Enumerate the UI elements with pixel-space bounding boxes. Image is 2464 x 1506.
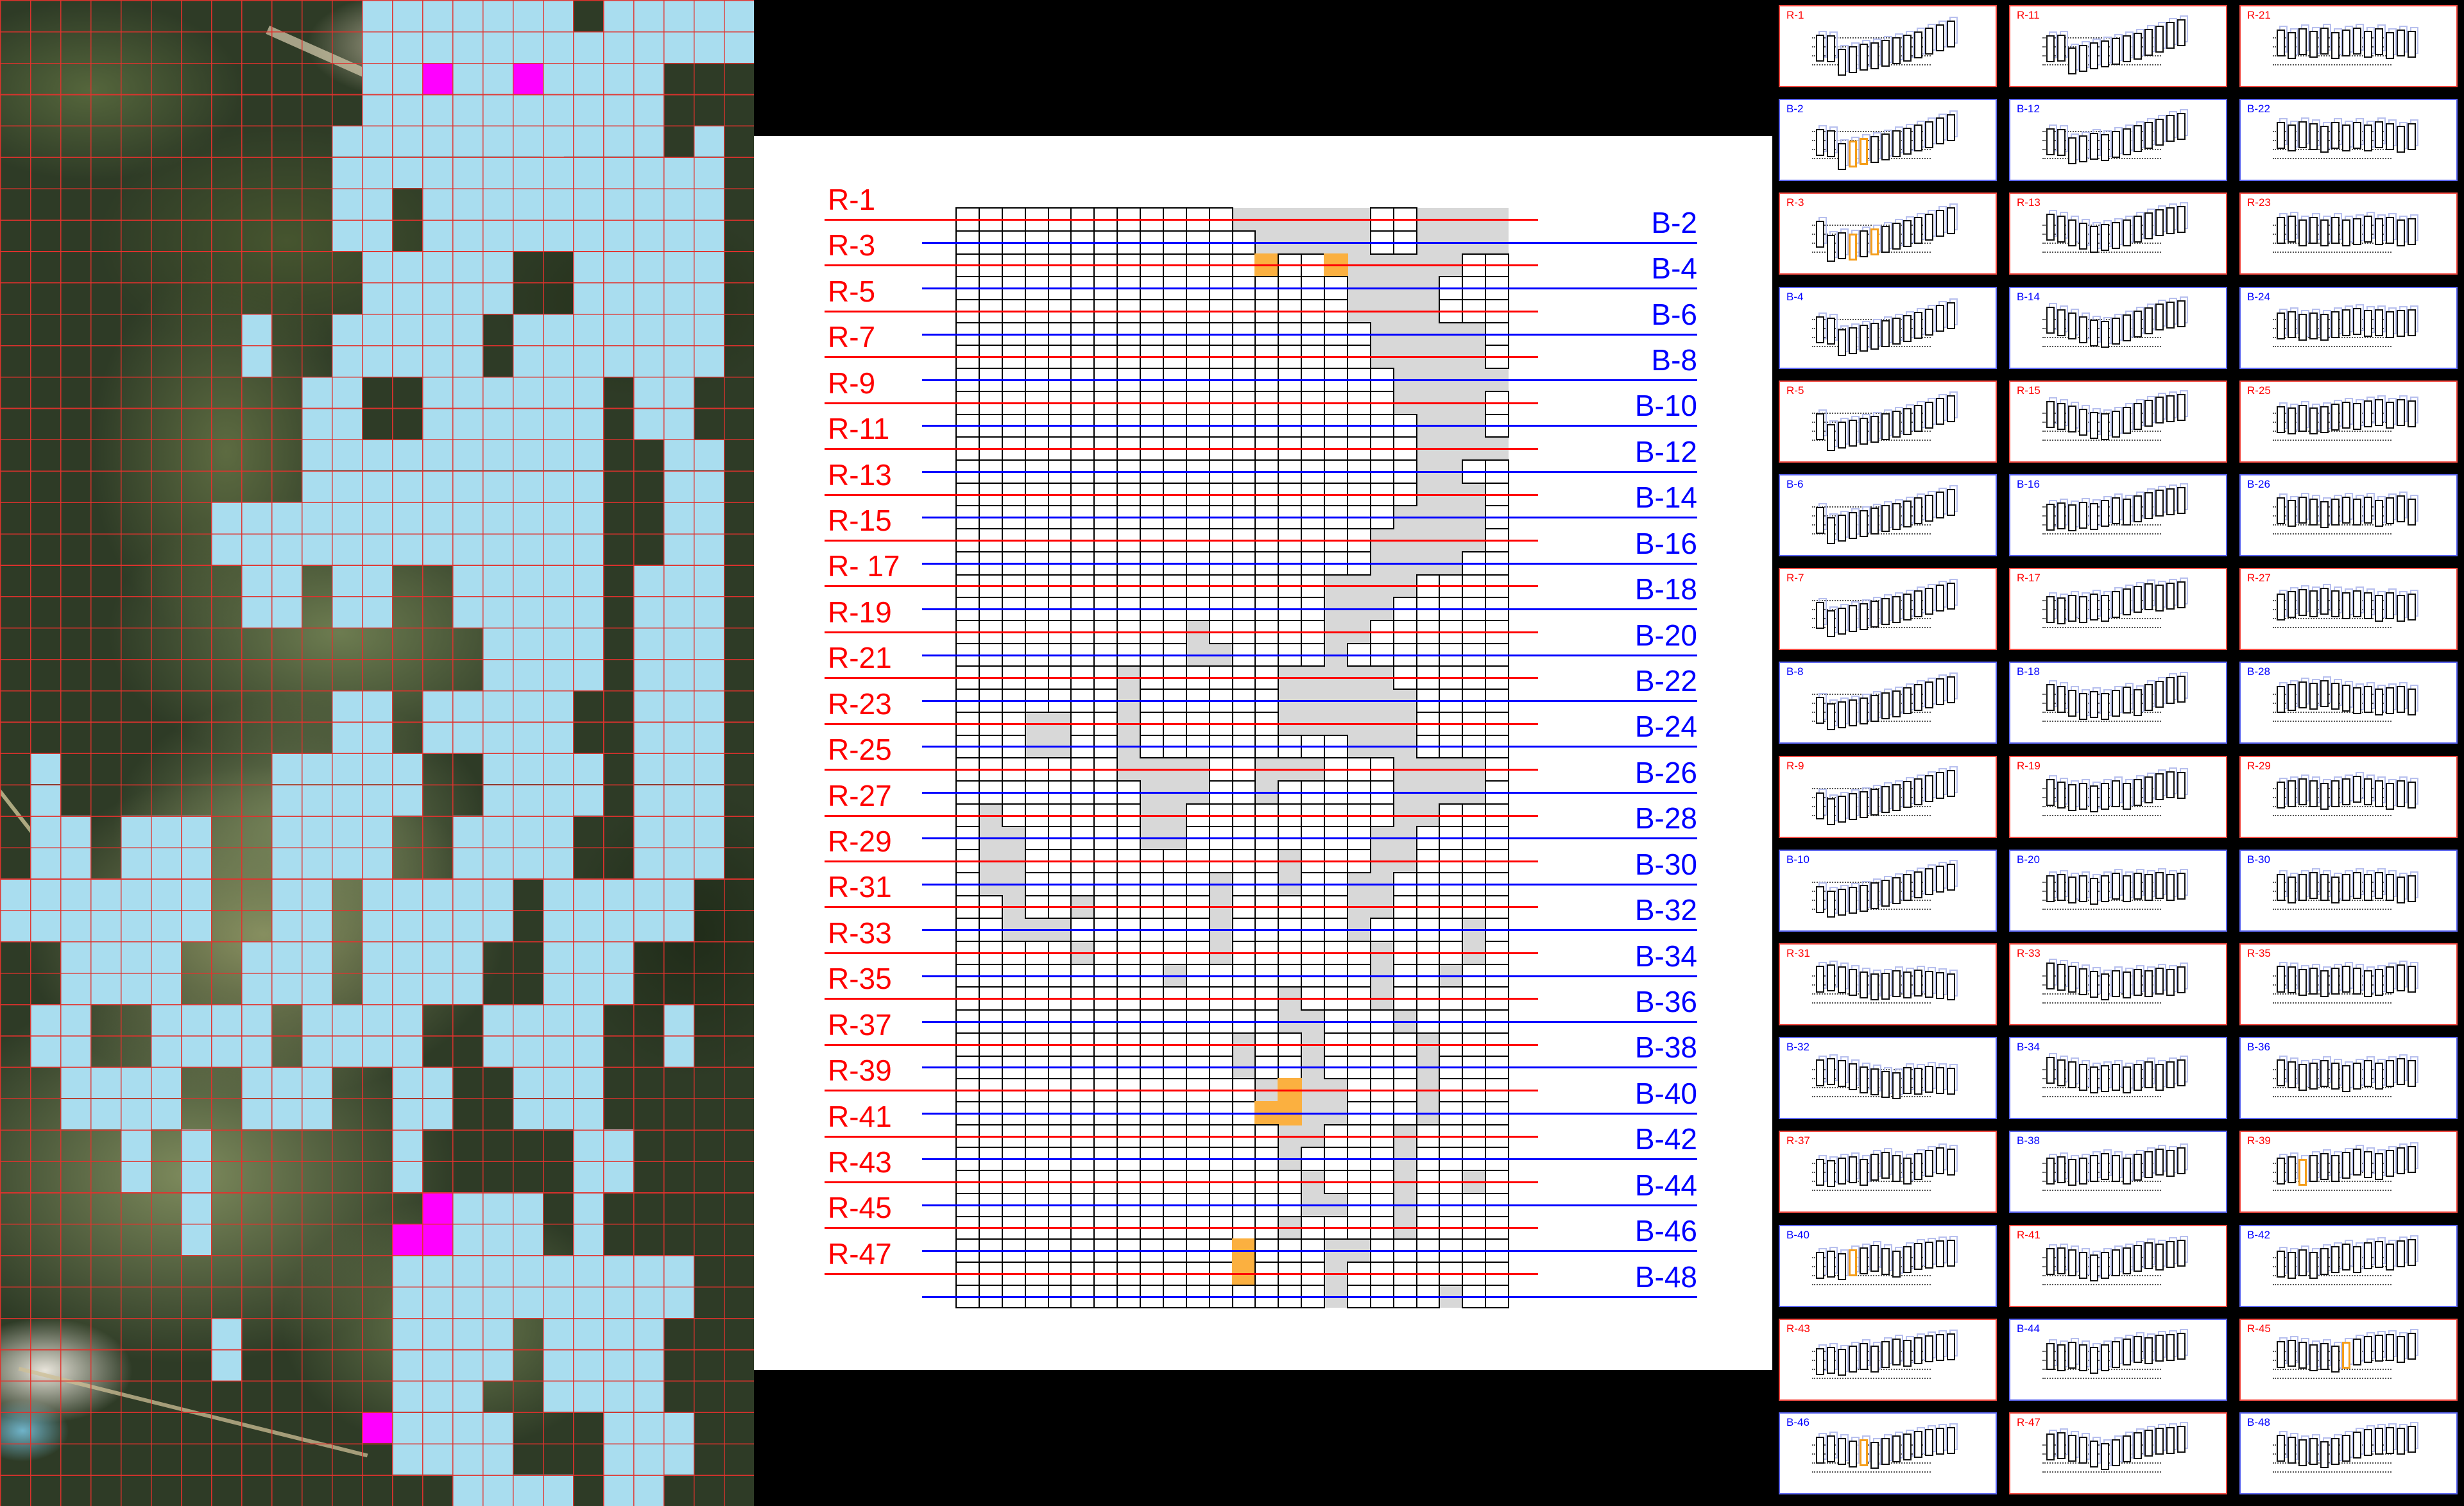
profile-bar	[1849, 512, 1857, 539]
transect-label-right: B-12	[1505, 437, 1697, 466]
profile-bar	[2331, 590, 2340, 617]
profile-dotted-line	[2273, 346, 2391, 347]
transect-line-red	[825, 906, 1538, 908]
profile-bar	[2046, 963, 2055, 989]
profile-card[interactable]: R-23	[2239, 193, 2458, 275]
profile-card[interactable]: R-17	[2009, 568, 2227, 650]
profile-bar	[2166, 395, 2175, 422]
profile-card[interactable]: B-44	[2009, 1319, 2227, 1401]
profile-card[interactable]: B-36	[2239, 1037, 2458, 1119]
profile-bar	[2177, 1426, 2186, 1453]
profile-bar	[1827, 517, 1835, 544]
profile-card[interactable]: B-40	[1779, 1225, 1997, 1307]
profile-dotted-line	[2273, 815, 2391, 816]
transect-line-blue	[922, 1113, 1697, 1115]
profile-bar	[1816, 1059, 1824, 1086]
profile-card[interactable]: B-8	[1779, 662, 1997, 744]
profile-bar	[2101, 1153, 2109, 1180]
profile-bar	[2090, 226, 2098, 253]
profile-card[interactable]: B-38	[2009, 1131, 2227, 1213]
profile-card[interactable]: B-42	[2239, 1225, 2458, 1307]
profile-card[interactable]: R-7	[1779, 568, 1997, 650]
profile-bar	[2123, 407, 2131, 434]
profile-bar	[2112, 131, 2120, 158]
profile-bar	[1838, 49, 1846, 76]
profile-bar	[2090, 503, 2098, 530]
profile-bar	[2408, 1146, 2416, 1173]
profile-bar	[2320, 1343, 2329, 1370]
profile-card[interactable]: B-12	[2009, 99, 2227, 181]
profile-bar	[2342, 402, 2350, 429]
profile-bar	[2375, 689, 2383, 715]
profile-bar	[2277, 30, 2285, 56]
profile-bar	[2320, 28, 2329, 55]
profile-bar	[2364, 1336, 2372, 1363]
profile-card[interactable]: B-16	[2009, 474, 2227, 556]
profile-bar	[1860, 791, 1868, 818]
profile-card[interactable]: R-1	[1779, 5, 1997, 87]
profile-bar	[1838, 1349, 1846, 1376]
profile-bar	[1892, 411, 1901, 438]
profile-bar	[1849, 327, 1857, 354]
transect-label-right: B-6	[1505, 300, 1697, 329]
profile-bar	[1860, 44, 1868, 71]
transect-label-left: R-1	[828, 185, 995, 214]
profile-bar	[1947, 207, 1955, 234]
profile-card-label: R-11	[2017, 9, 2040, 22]
profile-card[interactable]: R-13	[2009, 193, 2227, 275]
profile-card[interactable]: B-22	[2239, 99, 2458, 181]
profile-bar	[2397, 877, 2405, 903]
profile-bar	[2309, 590, 2318, 617]
profile-bar	[2166, 22, 2175, 49]
profile-bar	[1903, 1158, 1912, 1185]
profile-bar	[2057, 686, 2066, 713]
profile-bar	[2046, 1343, 2055, 1370]
profile-card-label: R-17	[2017, 572, 2041, 585]
profile-bar	[2046, 596, 2055, 623]
profile-bar	[2123, 314, 2131, 341]
profile-bar	[1925, 971, 1933, 998]
profile-bar	[2112, 970, 2120, 997]
profile-bar	[1870, 695, 1879, 722]
profile-bar	[1849, 1346, 1857, 1373]
profile-bar	[2397, 780, 2405, 807]
profile-bar	[2386, 497, 2394, 524]
profile-dotted-line	[2042, 627, 2161, 628]
profile-bar	[2101, 500, 2109, 527]
profile-bar	[2155, 872, 2164, 899]
profile-bar	[2079, 596, 2087, 623]
profile-card[interactable]: R-35	[2239, 943, 2458, 1025]
profile-card[interactable]: R-43	[1779, 1319, 1997, 1401]
profile-bar	[1925, 495, 1933, 522]
profile-bar	[2101, 595, 2109, 622]
transect-line-red	[825, 494, 1538, 496]
profile-bar	[1827, 1435, 1835, 1462]
profile-bar	[2298, 969, 2307, 996]
transect-line-red	[825, 585, 1538, 587]
transect-label-left: R-7	[828, 322, 995, 352]
profile-bar	[1936, 210, 1944, 237]
profile-dotted-line	[2273, 1471, 2391, 1473]
profile-bar	[1816, 602, 1824, 629]
profile-bar-orange	[1849, 234, 1857, 261]
profile-card[interactable]: R-45	[2239, 1319, 2458, 1401]
profile-bar	[2134, 33, 2142, 60]
profile-bar	[2166, 1150, 2175, 1177]
transect-line-red	[825, 1181, 1538, 1183]
profile-bar	[2309, 968, 2318, 995]
profile-bar	[2277, 1251, 2285, 1278]
transect-label-right: B-16	[1505, 529, 1697, 558]
profile-bar	[1947, 973, 1955, 1000]
transect-label-left: R-21	[828, 643, 995, 672]
profile-bar	[1881, 320, 1890, 347]
profile-bar	[2177, 206, 2186, 233]
transect-line-blue	[922, 242, 1697, 244]
profile-bar	[1947, 1149, 1955, 1176]
profile-bar	[2386, 1334, 2394, 1361]
profile-card-label: R-47	[2017, 1416, 2041, 1429]
profile-card[interactable]: R-37	[1779, 1131, 1997, 1213]
transect-label-left: R-23	[828, 689, 995, 719]
profile-dotted-line	[2273, 1190, 2391, 1191]
profile-card[interactable]: R-29	[2239, 756, 2458, 838]
profile-card-label: R-25	[2247, 384, 2271, 397]
profile-bar	[2386, 123, 2394, 150]
profile-bar	[2134, 689, 2142, 716]
profile-card[interactable]: B-34	[2009, 1037, 2227, 1119]
profile-bar	[2277, 1059, 2285, 1086]
profile-card-label: R-45	[2247, 1322, 2271, 1335]
profile-bar-orange	[2298, 1159, 2307, 1186]
profile-bar	[1925, 1150, 1933, 1177]
profile-bar	[2342, 966, 2350, 993]
profile-bar	[2134, 586, 2142, 613]
profile-dotted-line	[2042, 1284, 2161, 1285]
profile-bar	[2309, 407, 2318, 434]
profile-card[interactable]: R-5	[1779, 381, 1997, 463]
profile-bar	[2408, 1060, 2416, 1087]
transect-label-right: B-14	[1505, 483, 1697, 512]
profile-bar	[1849, 1156, 1857, 1183]
profile-bar	[2155, 1335, 2164, 1362]
profile-bar	[2397, 686, 2405, 713]
profile-card[interactable]: B-4	[1779, 287, 1997, 369]
profile-card[interactable]: R-41	[2009, 1225, 2227, 1307]
profile-bar	[2364, 124, 2372, 151]
profile-bar	[1881, 692, 1890, 719]
profile-bar	[2364, 216, 2372, 243]
profile-bar	[2288, 216, 2296, 243]
transect-line-red	[825, 1273, 1538, 1275]
profile-bar	[1903, 128, 1912, 155]
profile-bar	[2397, 1428, 2405, 1455]
transect-diagram-panel: R-1B-2R-3B-4R-5B-6R-7B-8R-9B-10R-11B-12R…	[754, 136, 1772, 1370]
profile-bar	[2112, 873, 2120, 900]
profile-bar	[1860, 1247, 1868, 1274]
profile-bar	[2057, 403, 2066, 430]
profile-bar	[1881, 1438, 1890, 1465]
profile-bar	[2177, 1333, 2186, 1360]
profile-bar	[2166, 583, 2175, 610]
profile-bar	[1827, 798, 1835, 825]
profile-bar	[1849, 969, 1857, 996]
transect-line-red	[825, 998, 1538, 1000]
profile-bar	[1827, 1058, 1835, 1085]
profile-bar	[2288, 311, 2296, 338]
profile-bar	[2331, 1063, 2340, 1090]
profile-card[interactable]: B-46	[1779, 1412, 1997, 1494]
profile-dotted-line	[2273, 440, 2391, 441]
profile-bar	[2079, 1344, 2087, 1371]
profile-dotted-line	[2042, 815, 2161, 816]
profile-card[interactable]: B-18	[2009, 662, 2227, 744]
profile-card[interactable]: B-30	[2239, 850, 2458, 932]
transect-line-blue	[922, 1158, 1697, 1160]
transect-label-right: B-8	[1505, 345, 1697, 375]
profile-bar	[2364, 970, 2372, 997]
profile-bar	[1816, 886, 1824, 913]
transect-label-left: R-3	[828, 230, 995, 260]
profile-card[interactable]: B-28	[2239, 662, 2458, 744]
profile-bar	[2353, 218, 2361, 245]
profile-bar	[2386, 966, 2394, 993]
transect-line-red	[825, 631, 1538, 633]
profile-bar	[1892, 130, 1901, 157]
profile-bar	[1881, 598, 1890, 625]
profile-bar	[2288, 966, 2296, 993]
profile-bar	[1870, 601, 1879, 628]
profile-bar	[2134, 873, 2142, 900]
profile-bar	[2375, 1241, 2383, 1268]
profile-card-label: B-12	[2017, 103, 2040, 116]
profile-card-label: B-10	[1786, 853, 1810, 866]
profile-bar	[2046, 779, 2055, 806]
profile-card-label: R-7	[1786, 572, 1804, 585]
profile-bar	[1936, 24, 1944, 51]
profile-bar	[2046, 128, 2055, 155]
profile-bar	[2177, 113, 2186, 140]
profile-bar	[2144, 1242, 2153, 1269]
profile-bar	[2090, 594, 2098, 620]
profile-bar	[2166, 1241, 2175, 1268]
profile-bar	[2177, 1059, 2186, 1086]
profile-bar	[2134, 779, 2142, 806]
profile-bar	[1816, 35, 1824, 62]
profile-bar	[2046, 1057, 2055, 1084]
transect-line-blue	[922, 1021, 1697, 1023]
profile-card-label: B-32	[1786, 1041, 1810, 1054]
profile-card[interactable]: B-10	[1779, 850, 1997, 932]
profile-bar	[2298, 778, 2307, 805]
profile-bar	[2155, 209, 2164, 236]
profile-card[interactable]: R-15	[2009, 381, 2227, 463]
profile-bar	[2408, 689, 2416, 715]
profile-bar	[2079, 316, 2087, 343]
profile-bar	[2123, 1247, 2131, 1274]
profile-bar	[2277, 686, 2285, 713]
profile-card-label: B-6	[1786, 478, 1803, 491]
profile-bar	[2364, 1151, 2372, 1178]
profile-card[interactable]: B-6	[1779, 474, 1997, 556]
profile-bar	[2353, 1339, 2361, 1365]
profile-bar	[1925, 868, 1933, 895]
profile-bar	[1816, 792, 1824, 819]
profile-bar	[1903, 1433, 1912, 1460]
profile-bar	[2342, 1244, 2350, 1271]
profile-bar	[2123, 783, 2131, 810]
profile-card[interactable]: B-32	[1779, 1037, 1997, 1119]
profile-bar	[1881, 1341, 1890, 1368]
profile-bar	[2057, 1432, 2066, 1459]
profile-card-label: B-8	[1786, 665, 1803, 678]
profile-bar	[2057, 782, 2066, 809]
transect-line-red	[825, 815, 1538, 817]
profile-card[interactable]: R-11	[2009, 5, 2227, 87]
profile-bar	[2112, 318, 2120, 345]
profile-bar	[2057, 216, 2066, 243]
profile-bar	[2155, 26, 2164, 53]
profile-bar	[2397, 964, 2405, 991]
profile-card-label: B-4	[1786, 291, 1803, 304]
profile-bar	[1925, 121, 1933, 148]
profile-bar	[2298, 497, 2307, 524]
profile-bar	[1925, 214, 1933, 241]
profile-card-label: R-23	[2247, 196, 2271, 209]
profile-bar	[2309, 312, 2318, 339]
profile-bar	[1881, 226, 1890, 253]
transect-label-right: B-20	[1505, 620, 1697, 650]
profile-card[interactable]: R-33	[2009, 943, 2227, 1025]
profile-bar	[2079, 693, 2087, 720]
profile-bar	[2288, 32, 2296, 59]
profile-bar	[2309, 123, 2318, 150]
profile-card[interactable]: B-14	[2009, 287, 2227, 369]
profile-card-label: R-31	[1786, 947, 1810, 960]
profile-card[interactable]: R-25	[2239, 381, 2458, 463]
transect-line-red	[825, 1136, 1538, 1138]
transect-line-red	[825, 860, 1538, 862]
profile-card[interactable]: B-24	[2239, 287, 2458, 369]
profile-bar	[2375, 1428, 2383, 1455]
profile-bar	[1870, 508, 1879, 535]
profile-bar	[2144, 212, 2153, 239]
profile-bar	[2320, 1060, 2329, 1087]
profile-bar	[1903, 408, 1912, 435]
profile-card-label: R-35	[2247, 947, 2271, 960]
profile-card-label: B-28	[2247, 665, 2270, 678]
profile-dotted-line	[2042, 721, 2161, 722]
profile-card-label: R-37	[1786, 1134, 1810, 1147]
profile-bar	[2331, 32, 2340, 59]
profile-card[interactable]: R-3	[1779, 193, 1997, 275]
transect-line-red	[825, 356, 1538, 358]
profile-bar	[1816, 1348, 1824, 1375]
profile-bar	[1816, 129, 1824, 156]
profile-card-label: B-38	[2017, 1134, 2040, 1147]
profile-card[interactable]: B-20	[2009, 850, 2227, 932]
profile-bar	[1827, 703, 1835, 730]
profile-bar	[1870, 323, 1879, 350]
profile-bar	[2309, 683, 2318, 710]
profile-bar	[2155, 585, 2164, 612]
profile-bar	[2298, 405, 2307, 432]
survey-dashboard: R-1B-2R-3B-4R-5B-6R-7B-8R-9B-10R-11B-12R…	[0, 0, 2464, 1506]
profile-card[interactable]: B-48	[2239, 1412, 2458, 1494]
profile-card[interactable]: B-26	[2239, 474, 2458, 556]
profile-bar	[2134, 1064, 2142, 1091]
profile-bar	[1870, 416, 1879, 443]
transect-line-blue	[922, 837, 1697, 839]
profile-bar	[2177, 1240, 2186, 1267]
profile-card-label: B-26	[2247, 478, 2270, 491]
profile-bar	[2112, 780, 2120, 807]
profile-dotted-line	[2273, 627, 2391, 628]
profile-bar	[2386, 783, 2394, 810]
profile-bar	[2079, 502, 2087, 529]
transect-line-blue	[922, 563, 1697, 565]
profile-bar	[2177, 772, 2186, 799]
profile-bar	[1892, 1251, 1901, 1278]
profile-bar-orange	[1849, 141, 1857, 167]
profile-bar	[2166, 1427, 2175, 1454]
profile-bar	[2397, 399, 2405, 426]
profile-card[interactable]: R-27	[2239, 568, 2458, 650]
profile-bar	[1914, 124, 1922, 151]
profile-card[interactable]: R-21	[2239, 5, 2458, 87]
profile-bar	[2320, 783, 2329, 810]
profile-bar	[2309, 1063, 2318, 1090]
profile-bar	[2320, 1248, 2329, 1275]
profile-bar	[2123, 1158, 2131, 1185]
profile-bar	[2386, 592, 2394, 619]
profile-bar	[2177, 966, 2186, 993]
profile-bar	[1925, 1242, 1933, 1269]
profile-card[interactable]: R-39	[2239, 1131, 2458, 1213]
profile-bar	[2353, 968, 2361, 995]
profile-bar	[1892, 1435, 1901, 1462]
profile-bar	[2090, 691, 2098, 718]
profile-bar	[2386, 217, 2394, 244]
profile-card-label: B-40	[1786, 1229, 1810, 1242]
profile-bar	[1914, 217, 1922, 244]
profile-bar	[2112, 1439, 2120, 1466]
profile-card-label: R-21	[2247, 9, 2271, 22]
profile-bar	[2364, 1429, 2372, 1456]
profile-bar	[1849, 605, 1857, 632]
profile-card[interactable]: R-9	[1779, 756, 1997, 838]
profile-card-label: R-19	[2017, 760, 2041, 773]
profile-card[interactable]: R-19	[2009, 756, 2227, 838]
profile-bar	[1903, 781, 1912, 808]
profile-bar	[1936, 305, 1944, 332]
profile-card[interactable]: B-2	[1779, 99, 1997, 181]
profile-bar	[2408, 499, 2416, 526]
profile-bar	[2134, 1432, 2142, 1459]
profile-bar	[2375, 500, 2383, 527]
profile-card[interactable]: R-47	[2009, 1412, 2227, 1494]
profile-bar-orange	[1860, 1439, 1868, 1466]
transect-line-blue	[922, 975, 1697, 977]
profile-card[interactable]: R-31	[1779, 943, 1997, 1025]
profile-bar	[2397, 1147, 2405, 1174]
profile-bar	[2101, 40, 2109, 67]
profile-bar	[2046, 684, 2055, 711]
profile-bar	[1881, 786, 1890, 813]
transect-label-right: B-30	[1505, 850, 1697, 879]
